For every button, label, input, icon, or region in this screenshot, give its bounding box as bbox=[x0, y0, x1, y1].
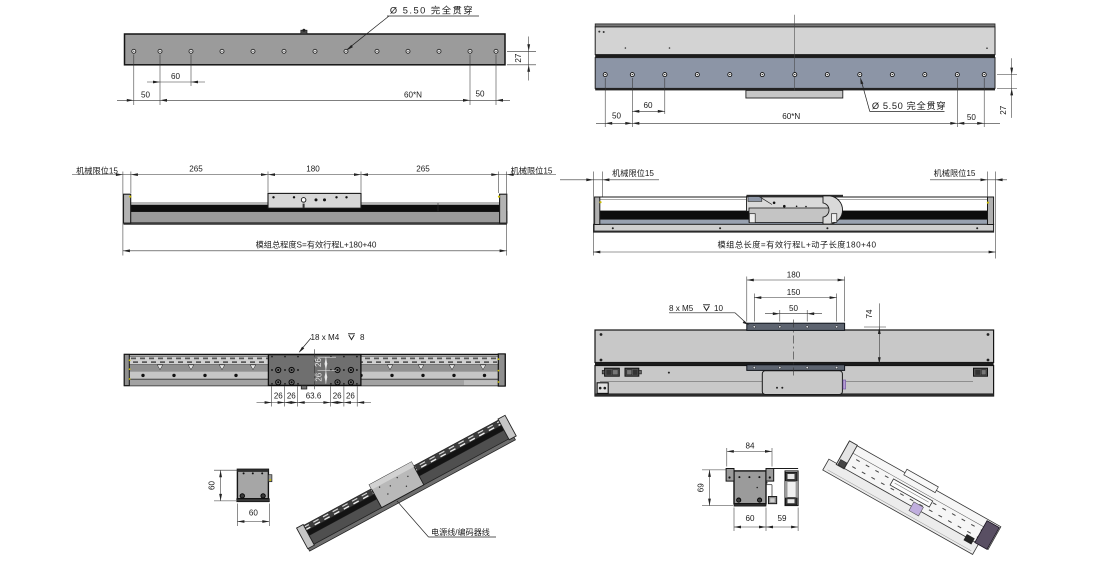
svg-text:50: 50 bbox=[475, 90, 485, 99]
svg-text:26: 26 bbox=[346, 391, 355, 400]
svg-text:26: 26 bbox=[314, 358, 323, 367]
svg-text:84: 84 bbox=[745, 441, 755, 450]
svg-text:60*N: 60*N bbox=[404, 91, 422, 100]
svg-text:26: 26 bbox=[274, 391, 283, 400]
svg-text:59: 59 bbox=[777, 514, 787, 523]
svg-text:Ø 5.50 完全贯穿: Ø 5.50 完全贯穿 bbox=[872, 100, 946, 111]
svg-text:74: 74 bbox=[865, 309, 874, 319]
svg-text:26: 26 bbox=[315, 372, 324, 381]
svg-text:模组总长度=有效行程L+动子长度180+40: 模组总长度=有效行程L+动子长度180+40 bbox=[717, 239, 876, 249]
svg-text:150: 150 bbox=[787, 288, 801, 297]
svg-text:27: 27 bbox=[999, 105, 1008, 115]
svg-text:电源线/编码器线: 电源线/编码器线 bbox=[431, 527, 490, 537]
svg-text:180: 180 bbox=[306, 164, 320, 173]
svg-text:60: 60 bbox=[745, 514, 755, 523]
svg-text:模组总程度S=有效行程L+180+40: 模组总程度S=有效行程L+180+40 bbox=[256, 239, 377, 249]
svg-text:8: 8 bbox=[360, 333, 365, 342]
svg-text:18 x M4: 18 x M4 bbox=[311, 333, 340, 342]
svg-text:60*N: 60*N bbox=[782, 112, 800, 121]
svg-text:27: 27 bbox=[514, 53, 523, 63]
svg-text:180: 180 bbox=[787, 271, 801, 280]
svg-text:265: 265 bbox=[416, 164, 430, 173]
svg-text:60: 60 bbox=[208, 481, 217, 491]
svg-text:26: 26 bbox=[287, 391, 296, 400]
svg-text:10: 10 bbox=[714, 304, 724, 313]
svg-text:机械限位15: 机械限位15 bbox=[76, 165, 118, 175]
svg-text:63.6: 63.6 bbox=[306, 391, 322, 400]
svg-text:26: 26 bbox=[333, 391, 342, 400]
svg-text:机械限位15: 机械限位15 bbox=[934, 168, 976, 178]
svg-text:60: 60 bbox=[643, 101, 653, 110]
svg-text:Ø 5.50 完全贯穿: Ø 5.50 完全贯穿 bbox=[390, 5, 474, 16]
svg-text:69: 69 bbox=[697, 483, 706, 493]
svg-text:50: 50 bbox=[141, 91, 151, 100]
svg-text:机械限位15: 机械限位15 bbox=[612, 168, 654, 178]
svg-text:265: 265 bbox=[189, 164, 203, 173]
svg-text:50: 50 bbox=[789, 304, 799, 313]
svg-text:8 x M5: 8 x M5 bbox=[669, 304, 694, 313]
svg-text:50: 50 bbox=[967, 113, 977, 122]
svg-text:机械限位15: 机械限位15 bbox=[511, 165, 553, 175]
svg-text:60: 60 bbox=[249, 508, 259, 517]
svg-text:50: 50 bbox=[612, 112, 622, 121]
svg-text:60: 60 bbox=[171, 72, 181, 81]
